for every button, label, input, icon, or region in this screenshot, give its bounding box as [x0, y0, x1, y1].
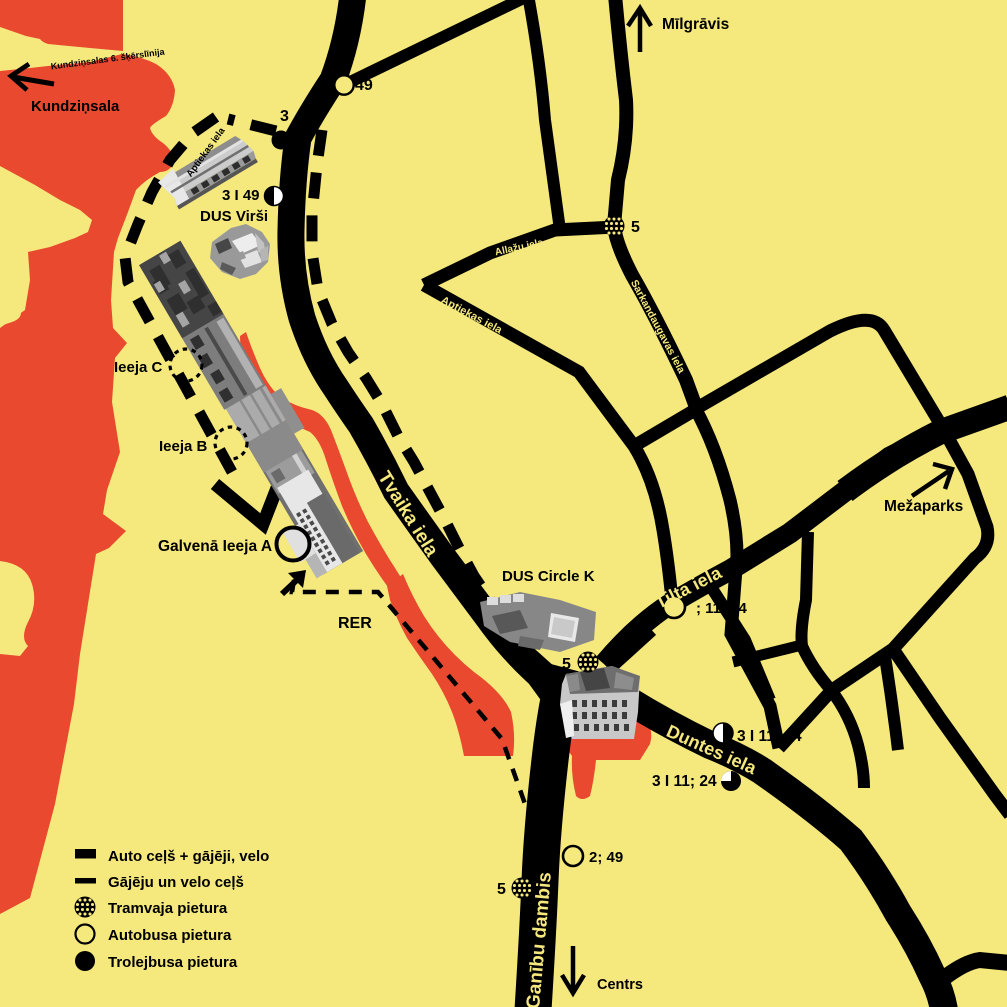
svg-text:DUS Virši: DUS Virši [200, 208, 268, 225]
svg-text:5: 5 [631, 219, 640, 236]
svg-text:2; 49: 2; 49 [589, 849, 623, 866]
svg-text:; 11; 24: ; 11; 24 [696, 600, 748, 617]
svg-text:5: 5 [562, 656, 571, 673]
svg-text:Tramvaja pietura: Tramvaja pietura [108, 900, 228, 917]
svg-text:5: 5 [497, 881, 506, 898]
svg-text:Trolejbusa pietura: Trolejbusa pietura [108, 954, 238, 971]
svg-text:Ieeja C: Ieeja C [114, 359, 163, 376]
svg-text:Kundziņsala: Kundziņsala [31, 98, 120, 115]
svg-text:Ieeja B: Ieeja B [159, 438, 208, 455]
svg-text:49: 49 [355, 77, 373, 94]
svg-text:Galvenā Ieeja A: Galvenā Ieeja A [158, 538, 272, 555]
svg-text:3 I 11; 24: 3 I 11; 24 [652, 773, 717, 790]
svg-text:3 I 49: 3 I 49 [222, 187, 260, 204]
svg-text:Gājēju un velo ceļš: Gājēju un velo ceļš [108, 874, 244, 891]
svg-text:DUS Circle K: DUS Circle K [502, 568, 595, 585]
svg-text:Autobusa pietura: Autobusa pietura [108, 927, 232, 944]
svg-text:3 I 11; 24: 3 I 11; 24 [737, 728, 802, 745]
svg-text:Auto ceļš + gājēji, velo: Auto ceļš + gājēji, velo [108, 848, 269, 865]
svg-text:3: 3 [280, 108, 289, 125]
svg-text:Mežaparks: Mežaparks [884, 498, 963, 515]
svg-text:Mīlgrāvis: Mīlgrāvis [662, 16, 729, 33]
svg-text:Centrs: Centrs [597, 977, 643, 993]
svg-text:RER: RER [338, 615, 372, 632]
